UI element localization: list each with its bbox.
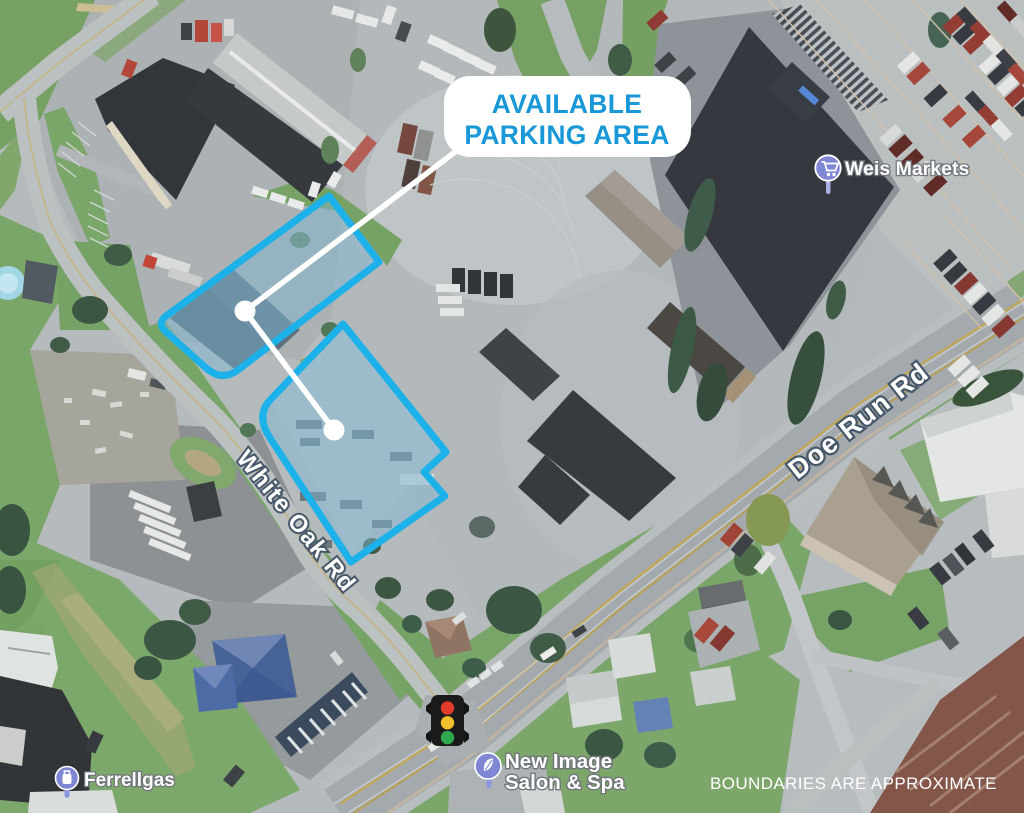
svg-text:New Image: New Image	[505, 750, 612, 773]
svg-text:Salon & Spa: Salon & Spa	[505, 771, 625, 794]
svg-text:PARKING AREA: PARKING AREA	[464, 120, 669, 150]
svg-text:Weis Markets: Weis Markets	[845, 158, 969, 180]
svg-text:AVAILABLE: AVAILABLE	[492, 89, 642, 119]
svg-text:BOUNDARIES ARE APPROXIMATE: BOUNDARIES ARE APPROXIMATE	[710, 774, 997, 793]
svg-text:Ferrellgas: Ferrellgas	[84, 770, 175, 791]
